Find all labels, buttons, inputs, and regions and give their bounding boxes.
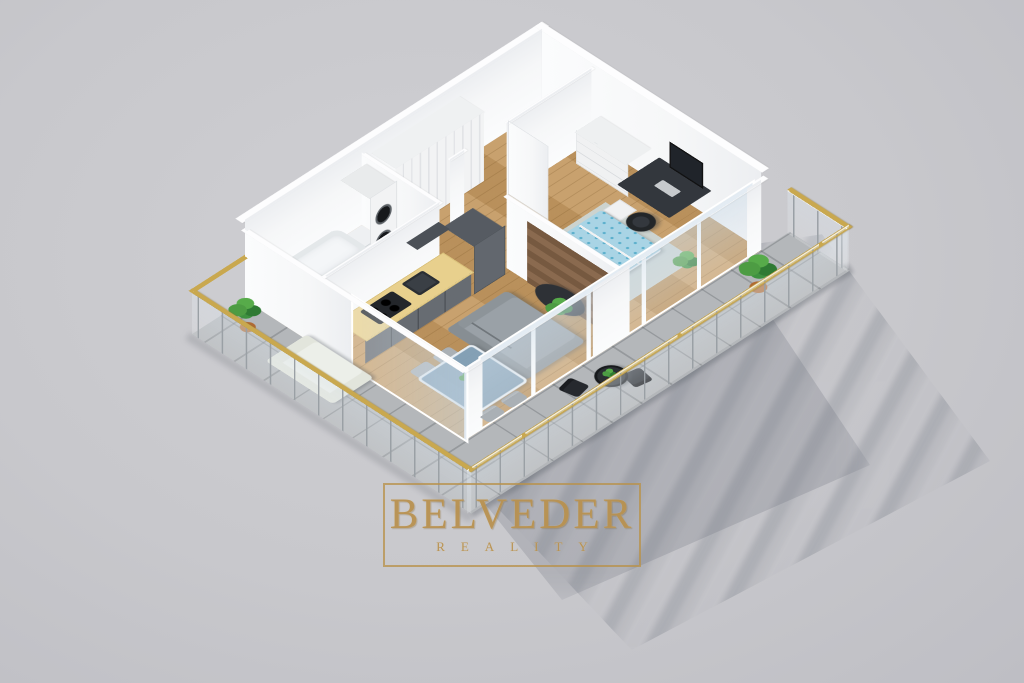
railing-post xyxy=(198,296,199,339)
railing-post xyxy=(342,388,343,431)
railing-post xyxy=(390,419,391,462)
railing-post xyxy=(668,341,669,384)
wall-pier-southeast-right xyxy=(747,179,761,259)
railing-post xyxy=(476,465,477,508)
railing-post xyxy=(644,357,645,400)
railing-post xyxy=(596,388,597,431)
railing-post xyxy=(222,311,223,354)
floorplan-render: BELVEDER REALITY xyxy=(0,0,1024,683)
railing-post xyxy=(294,357,295,400)
railing-post xyxy=(246,327,247,370)
railing-post xyxy=(524,434,525,477)
railing-post xyxy=(793,195,794,238)
railing-post xyxy=(548,419,549,462)
railing-post xyxy=(572,403,573,446)
railing-post xyxy=(500,450,501,493)
railing-post xyxy=(414,435,415,478)
railing-post xyxy=(620,372,621,415)
